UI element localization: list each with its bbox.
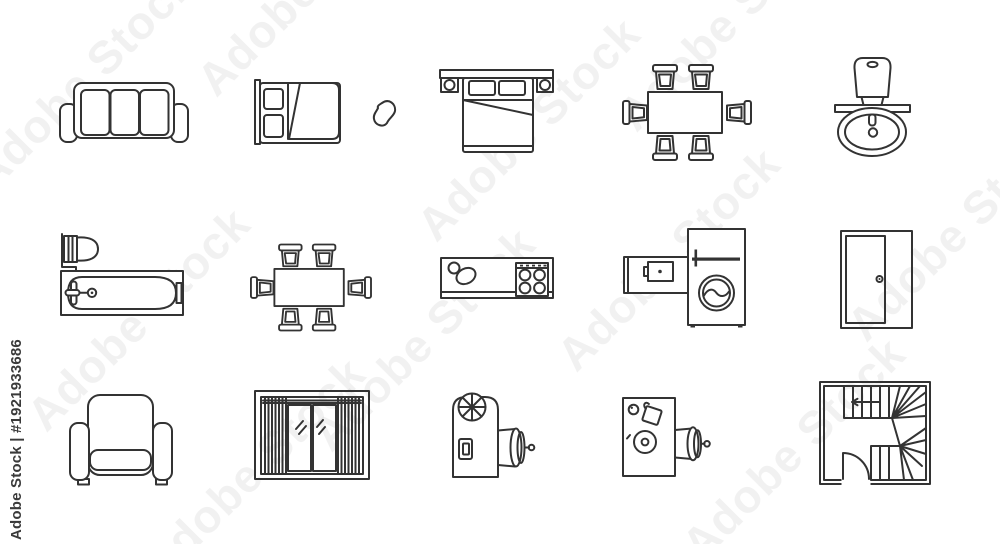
chair-knob xyxy=(704,441,710,447)
desk-fan-icon xyxy=(448,386,540,480)
bathtub-icon xyxy=(52,226,187,316)
direction-arrow xyxy=(852,399,880,405)
stair-stringer xyxy=(892,418,900,446)
door-opening xyxy=(842,478,871,486)
window-icon xyxy=(252,388,372,482)
curtain-left xyxy=(265,398,286,473)
kitchen-counter-icon xyxy=(436,254,558,302)
bed-pillow xyxy=(264,115,283,137)
dining-table-2-icon xyxy=(250,240,372,335)
lower-flight-steps xyxy=(871,446,900,480)
toilet-tank xyxy=(64,236,77,262)
faucet-cross xyxy=(66,290,80,296)
door-swing xyxy=(843,453,869,479)
drawer-handle xyxy=(695,250,698,267)
dining-table-icon xyxy=(622,60,752,165)
chair-cushion xyxy=(90,450,151,470)
sink-box-dot xyxy=(658,270,662,274)
single-bed-icon xyxy=(252,76,402,148)
bed-pillow xyxy=(264,89,283,109)
fan-hub xyxy=(470,405,473,408)
staircase-icon xyxy=(816,378,934,488)
curtain-right xyxy=(338,398,359,473)
drain-dot xyxy=(91,292,94,295)
machine-foot xyxy=(691,325,696,328)
washing-machine-icon xyxy=(620,226,750,328)
detergent-drawer xyxy=(692,258,740,261)
winder-steps-top xyxy=(892,386,926,418)
table-group xyxy=(251,245,371,331)
curtain-rail xyxy=(263,401,361,404)
machine-foot xyxy=(738,325,743,328)
wall-inner xyxy=(824,386,926,480)
wall-outer xyxy=(820,382,930,484)
door-knob-dot xyxy=(879,278,881,280)
cistern-neck xyxy=(862,97,884,105)
chair-armrest xyxy=(153,423,172,480)
sofa-icon xyxy=(58,80,190,144)
sofa-cushion xyxy=(111,90,140,135)
lamp xyxy=(540,80,550,90)
small-bowl-dot xyxy=(631,407,633,409)
furniture-icon-sheet: Adobe Stock Adobe Stock Adobe Stock Adob… xyxy=(0,0,1000,544)
bed-headboard xyxy=(440,70,553,78)
tub-handle xyxy=(177,283,182,303)
door-icon xyxy=(838,226,916,332)
double-bed-icon xyxy=(432,64,558,156)
cistern xyxy=(854,58,890,97)
chair-knob xyxy=(529,445,535,451)
toilet-bowl xyxy=(77,237,98,260)
armchair-icon xyxy=(64,392,172,486)
sofa-cushion xyxy=(81,90,110,135)
bedside-rug xyxy=(374,101,395,125)
table-top xyxy=(648,92,722,133)
toilet-sink-icon xyxy=(830,52,922,164)
chair-armrest xyxy=(70,423,89,480)
desk-cup-icon xyxy=(618,392,714,480)
attribution-text: Adobe Stock | #1921933686 xyxy=(8,339,25,540)
window-pane xyxy=(288,405,311,471)
winder-steps-bottom xyxy=(900,428,926,480)
lamp xyxy=(445,80,455,90)
desk-top xyxy=(623,398,675,476)
sofa-cushion xyxy=(140,90,169,135)
window-pane xyxy=(313,405,336,471)
